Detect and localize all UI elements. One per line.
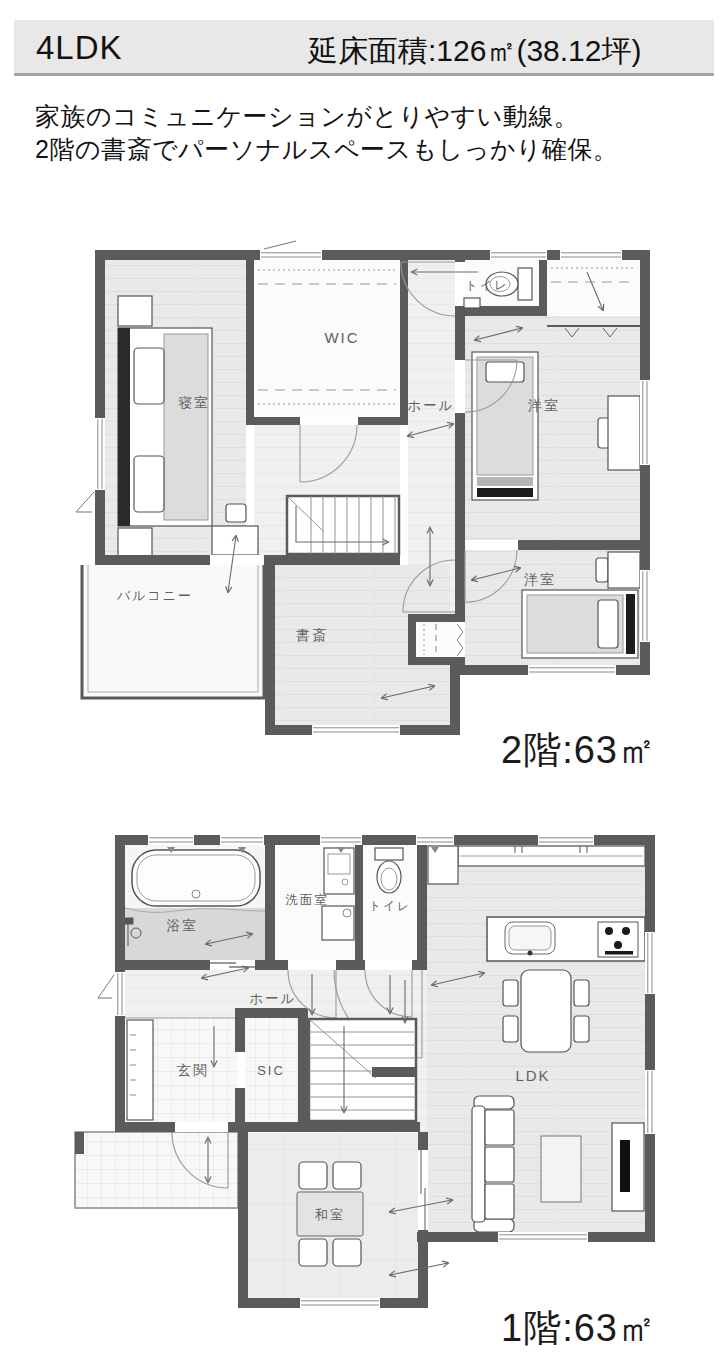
kitchen-cupboard xyxy=(458,846,645,866)
floor-plan-1f: 浴室 洗面室 トイレ ホール 玄関 SIC LDK 和室 1階:63㎡ xyxy=(60,820,680,1365)
stove xyxy=(598,922,638,957)
sofa xyxy=(472,1096,514,1232)
floor1-caption: 1階:63㎡ xyxy=(501,1307,657,1349)
room-label-entrance: 玄関 xyxy=(177,1062,209,1078)
room-label-toilet-1f: トイレ xyxy=(369,900,410,912)
tv-board xyxy=(612,1123,644,1211)
washbasin xyxy=(324,848,354,894)
bed-single-2 xyxy=(522,590,638,658)
floor-plan-page: 4LDK 延床面積:126㎡(38.12坪) 家族のコミュニケーションがとりやす… xyxy=(0,0,728,1365)
total-area-label: 延床面積:126㎡(38.12坪) xyxy=(308,31,641,72)
refrigerator xyxy=(428,846,458,884)
kitchen-counter xyxy=(487,917,645,961)
floor2-caption: 2階:63㎡ xyxy=(501,729,657,771)
room-label-balcony: バルコニー xyxy=(116,588,193,603)
plan-type-label: 4LDK xyxy=(36,29,123,67)
stairs-2f xyxy=(287,496,399,554)
room-label-study: 書斎 xyxy=(296,627,328,643)
room-label-wic: WIC xyxy=(324,329,359,346)
window-flag-icon xyxy=(98,975,114,998)
bed-double xyxy=(118,296,212,558)
room-label-hall-2f: ホール xyxy=(407,398,454,413)
room-label-western-1: 洋室 xyxy=(528,397,560,413)
description-line1: 家族のコミュニケーションがとりやすい動線。 xyxy=(35,102,579,130)
room-label-ldk: LDK xyxy=(515,1067,550,1084)
room-label-bath: 浴室 xyxy=(167,918,198,933)
floor-plan-2f: 寝室 WIC トイレ ホール 洋室 洋室 書斎 バルコニー 2階:63㎡ xyxy=(60,240,680,775)
toilet-fixture xyxy=(375,848,403,893)
bed-single-1 xyxy=(472,352,538,500)
header-bar: 4LDK 延床面積:126㎡(38.12坪) xyxy=(14,20,714,76)
washing-machine xyxy=(322,906,354,940)
porch xyxy=(75,1132,238,1208)
room-label-toilet-2f: トイレ xyxy=(466,278,509,292)
bathtub xyxy=(132,850,260,906)
window-flag-icon xyxy=(264,241,296,249)
shoe-cabinet xyxy=(127,1020,153,1120)
tv xyxy=(620,1140,630,1192)
coffee-table xyxy=(541,1136,581,1202)
description: 家族のコミュニケーションがとりやすい動線。 2階の書斎でパーソナルスペースもしっ… xyxy=(35,100,619,166)
description-line2: 2階の書斎でパーソナルスペースもしっかり確保。 xyxy=(35,135,619,163)
room-label-sic: SIC xyxy=(257,1063,285,1078)
room-label-japanese: 和室 xyxy=(314,1207,345,1222)
room-label-western-2: 洋室 xyxy=(524,571,556,587)
window-flag-icon xyxy=(76,492,94,512)
room-label-bedroom: 寝室 xyxy=(179,395,210,410)
room-label-washroom: 洗面室 xyxy=(285,893,329,907)
desk-western-2 xyxy=(596,552,640,588)
room-label-hall-1f: ホール xyxy=(249,991,296,1006)
stairs-1f xyxy=(309,1019,416,1121)
closet-western-2 xyxy=(416,622,457,657)
